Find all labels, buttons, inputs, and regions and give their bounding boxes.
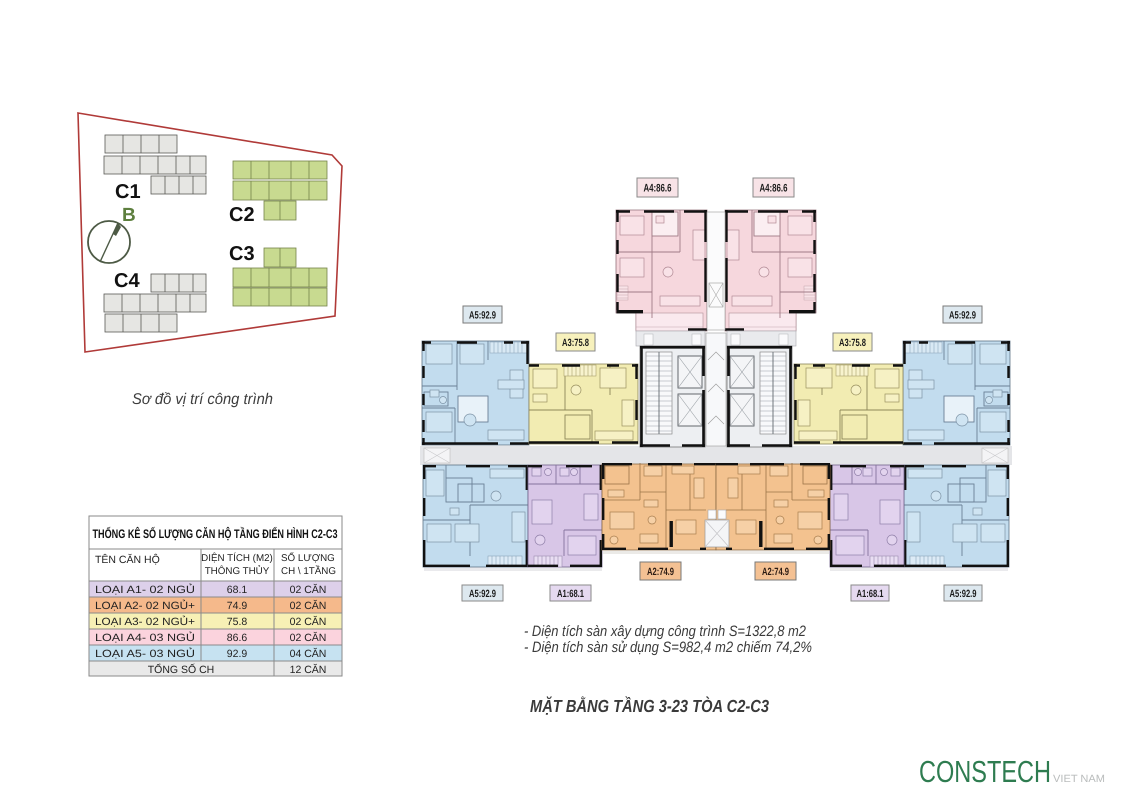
svg-text:LOẠI A4- 03 NGỦ: LOẠI A4- 03 NGỦ [95,631,195,644]
svg-text:A5:92.9: A5:92.9 [950,588,977,600]
svg-text:SỐ LƯỢNG: SỐ LƯỢNG [281,552,335,564]
svg-text:C2: C2 [229,204,255,226]
svg-text:A4:86.6: A4:86.6 [644,183,672,195]
svg-text:75.8: 75.8 [227,616,248,628]
svg-text:A4:86.6: A4:86.6 [760,183,788,195]
svg-text:A3:75.8: A3:75.8 [562,337,589,349]
svg-text:DIỆN TÍCH (M2): DIỆN TÍCH (M2) [201,552,273,564]
svg-text:04 CĂN: 04 CĂN [290,647,327,660]
svg-text:C4: C4 [114,270,140,292]
svg-text:TỔNG SỐ CH: TỔNG SỐ CH [148,663,215,676]
svg-text:74.9: 74.9 [227,600,248,612]
svg-text:A5:92.9: A5:92.9 [469,588,496,600]
svg-text:68.1: 68.1 [227,584,248,596]
svg-text:02 CĂN: 02 CĂN [290,599,327,612]
svg-text:02 CĂN: 02 CĂN [290,615,327,628]
svg-text:A5:92.9: A5:92.9 [469,310,496,322]
svg-text:THỐNG KÊ SỐ LƯỢNG CĂN HỘ TẦNG: THỐNG KÊ SỐ LƯỢNG CĂN HỘ TẦNG ĐIỂN HÌNH … [93,526,338,541]
svg-text:A1:68.1: A1:68.1 [557,588,584,600]
svg-text:C3: C3 [229,243,255,265]
svg-text:LOẠI A5- 03 NGỦ: LOẠI A5- 03 NGỦ [95,647,195,660]
svg-text:86.6: 86.6 [227,632,248,644]
svg-text:CH \ 1TẦNG: CH \ 1TẦNG [281,565,336,577]
svg-text:02 CĂN: 02 CĂN [290,583,327,596]
svg-text:TÊN CĂN HỘ: TÊN CĂN HỘ [95,553,160,566]
svg-text:C1: C1 [115,181,141,203]
svg-text:- Diện tích sàn sử dụng S=982,: - Diện tích sàn sử dụng S=982,4 m2 chiếm… [524,639,812,656]
svg-text:12 CĂN: 12 CĂN [290,663,327,676]
svg-text:LOẠI A3- 02 NGỦ+: LOẠI A3- 02 NGỦ+ [95,615,195,628]
svg-text:- Diện tích sàn xây dựng công: - Diện tích sàn xây dựng công trình S=13… [524,623,807,640]
svg-text:VIET NAM: VIET NAM [1053,773,1105,785]
svg-text:MẶT BẰNG TẦNG 3-23 TÒA C2-C3: MẶT BẰNG TẦNG 3-23 TÒA C2-C3 [530,696,769,716]
svg-text:02 CĂN: 02 CĂN [290,631,327,644]
svg-text:LOẠI A2- 02 NGỦ+: LOẠI A2- 02 NGỦ+ [95,599,195,612]
svg-text:CONSTECH: CONSTECH [919,755,1051,789]
svg-text:92.9: 92.9 [227,648,248,660]
svg-text:A2:74.9: A2:74.9 [762,566,789,578]
svg-text:A2:74.9: A2:74.9 [647,566,674,578]
svg-text:Sơ đồ vị trí công trình: Sơ đồ vị trí công trình [132,391,273,408]
svg-text:THÔNG THỦY: THÔNG THỦY [205,565,270,577]
svg-text:B: B [122,205,136,226]
svg-text:A5:92.9: A5:92.9 [949,310,976,322]
svg-text:A1:68.1: A1:68.1 [857,588,884,600]
svg-text:LOẠI A1- 02 NGỦ: LOẠI A1- 02 NGỦ [95,583,195,596]
svg-text:A3:75.8: A3:75.8 [839,337,866,349]
